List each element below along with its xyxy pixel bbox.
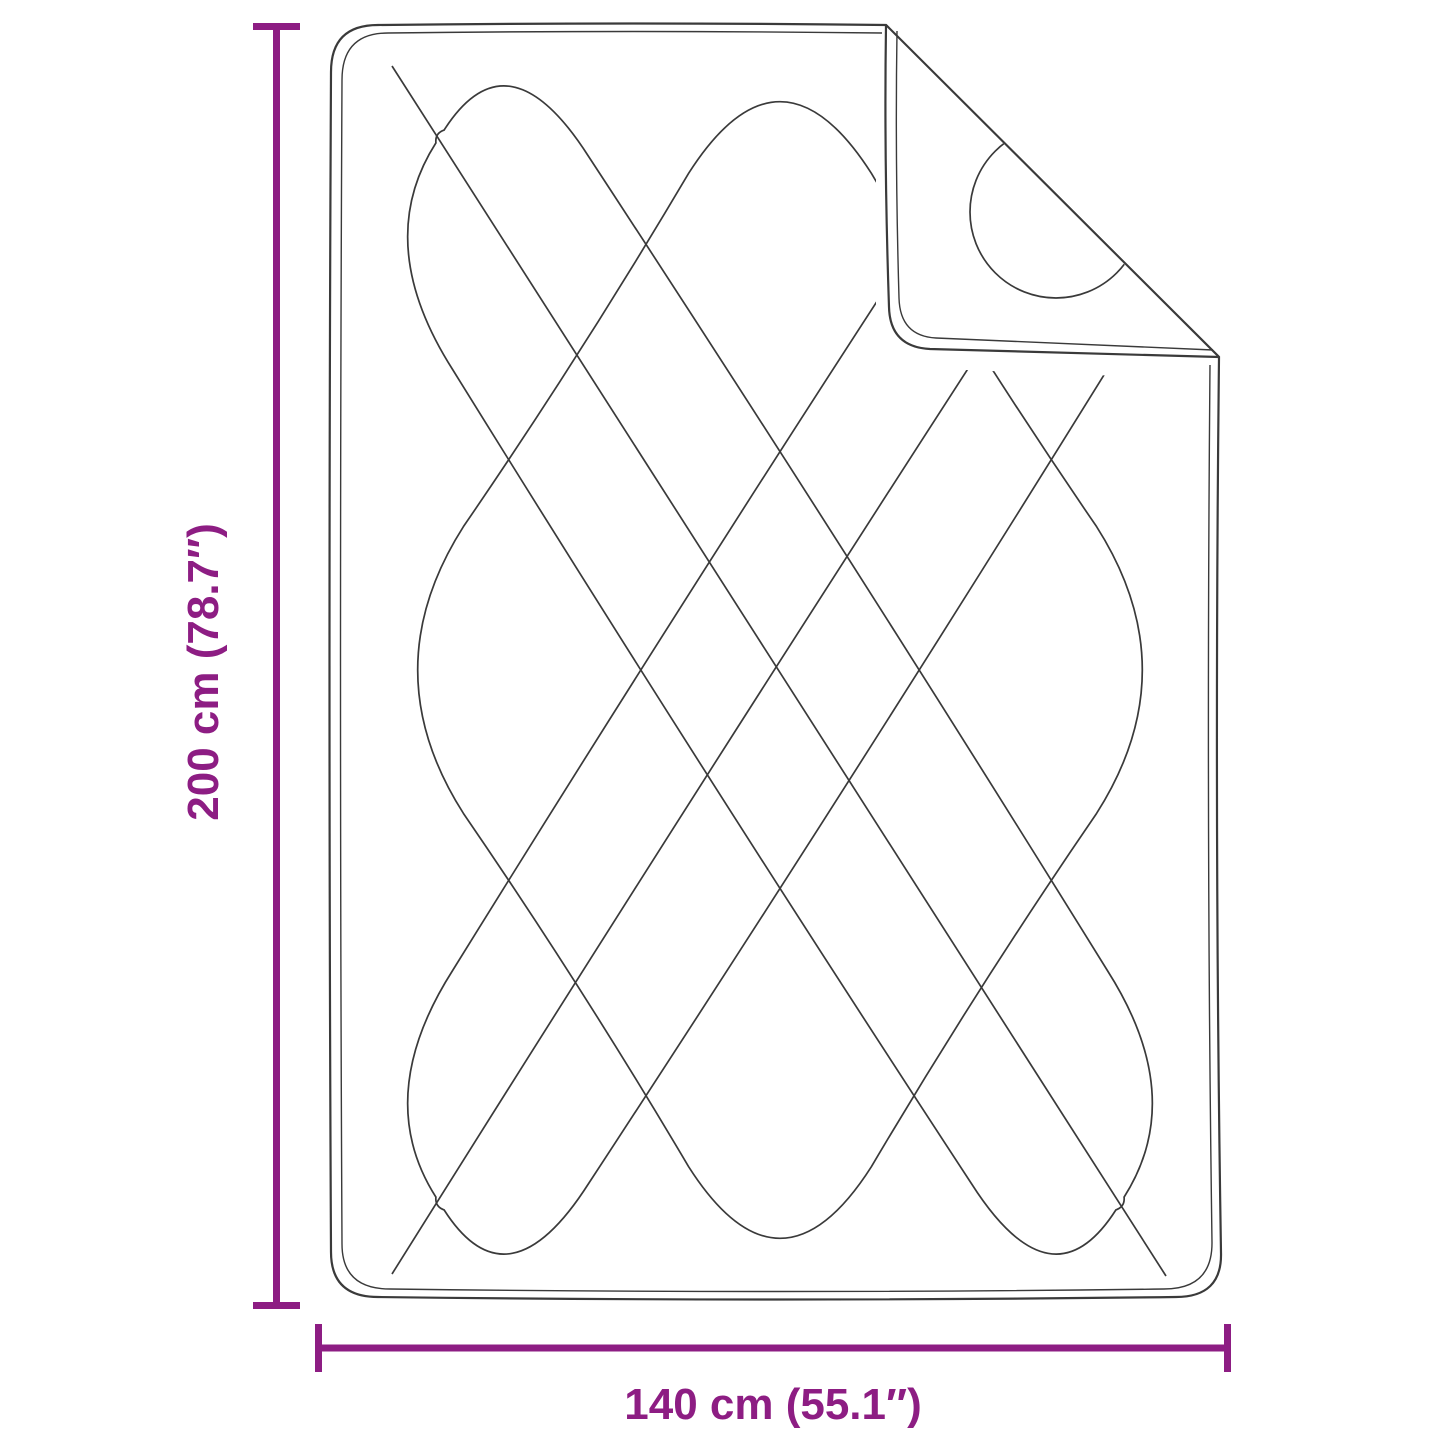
height-dimension-label: 200 cm (78.7″) xyxy=(179,523,228,820)
diagram-canvas: 200 cm (78.7″) 140 cm (55.1″) xyxy=(0,0,1445,1445)
width-dimension: 140 cm (55.1″) xyxy=(318,1324,1228,1429)
height-dimension: 200 cm (78.7″) xyxy=(179,26,300,1306)
blanket-outline xyxy=(330,24,1222,1300)
product-dimension-diagram: 200 cm (78.7″) 140 cm (55.1″) xyxy=(0,0,1445,1445)
width-dimension-label: 140 cm (55.1″) xyxy=(624,1380,921,1429)
